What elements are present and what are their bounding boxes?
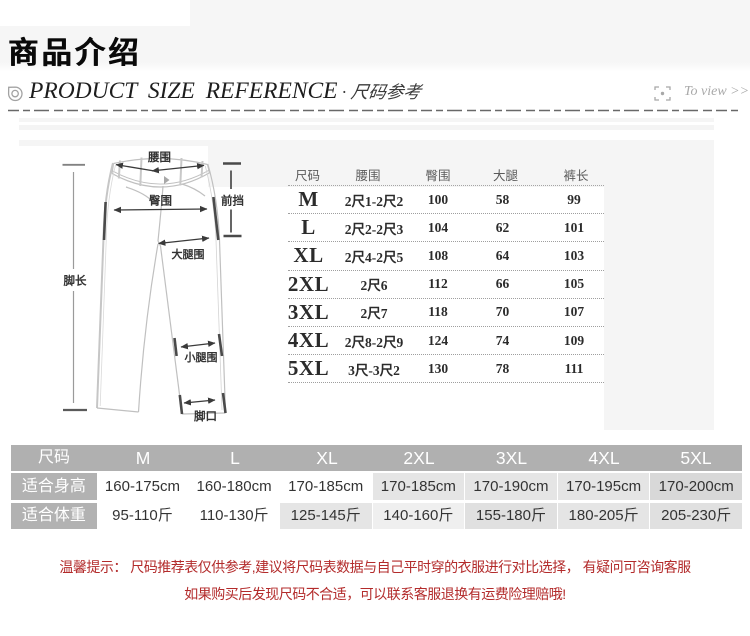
svg-text:脚长: 脚长 bbox=[64, 274, 87, 288]
svg-text:腰围: 腰围 bbox=[147, 150, 171, 164]
svg-text:臀围: 臀围 bbox=[149, 195, 172, 208]
svg-text:脚口: 脚口 bbox=[194, 409, 217, 423]
svg-text:大腿围: 大腿围 bbox=[172, 247, 205, 261]
svg-text:前挡: 前挡 bbox=[221, 194, 244, 208]
svg-text:小腿围: 小腿围 bbox=[184, 350, 218, 364]
